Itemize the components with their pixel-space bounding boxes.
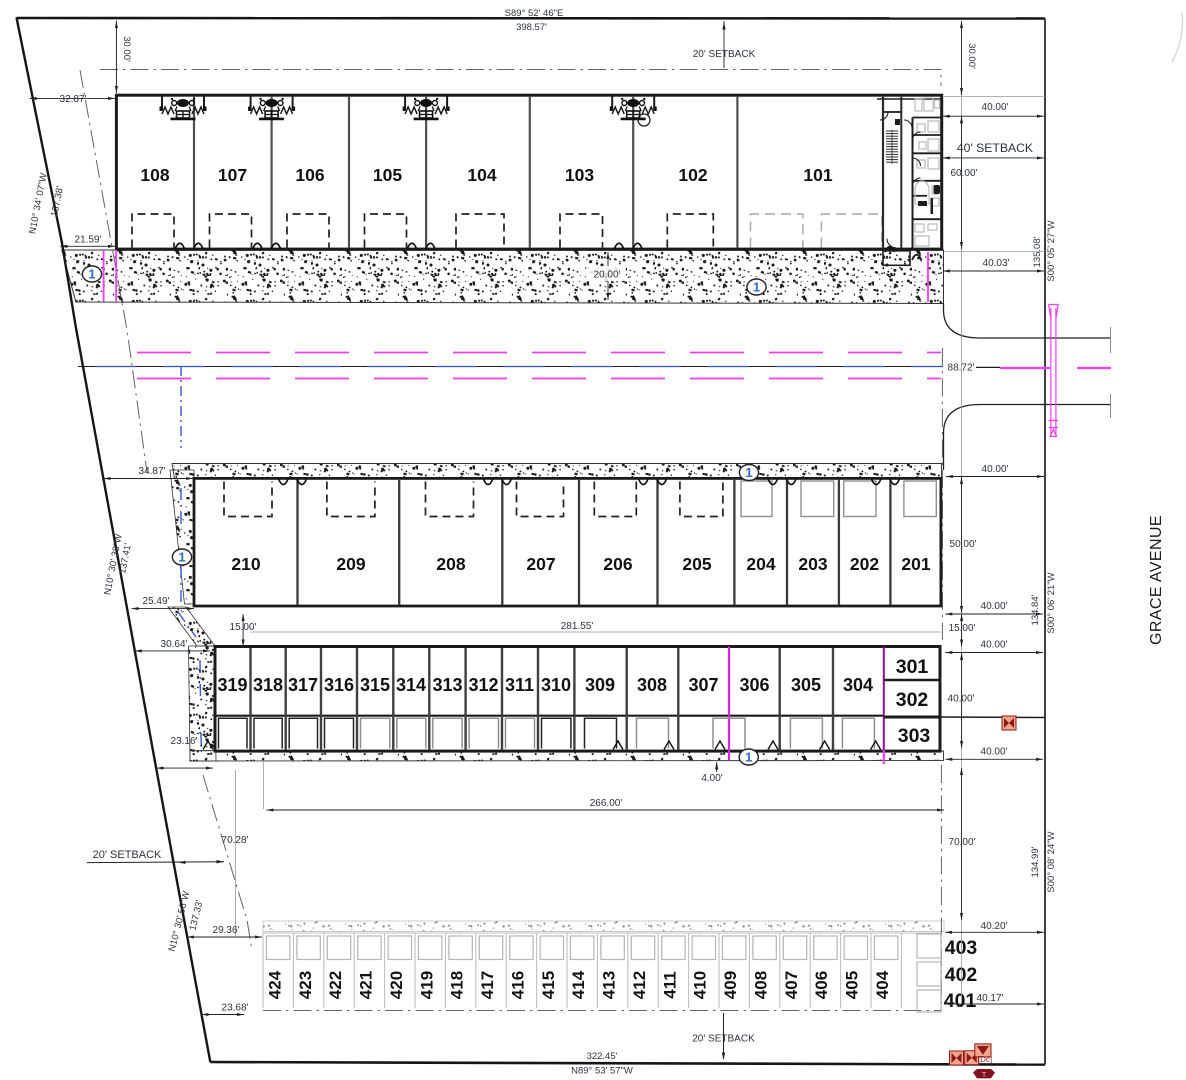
svg-text:306: 306 [739, 675, 769, 695]
svg-text:30.00': 30.00' [966, 43, 977, 69]
svg-text:414: 414 [569, 970, 588, 999]
svg-text:302: 302 [896, 689, 929, 711]
svg-text:15.00': 15.00' [949, 623, 976, 634]
svg-text:108: 108 [140, 165, 169, 185]
svg-text:421: 421 [357, 971, 376, 999]
svg-text:281.55': 281.55' [561, 621, 594, 632]
svg-text:310: 310 [541, 675, 571, 695]
svg-text:25.49': 25.49' [143, 596, 170, 607]
svg-text:105: 105 [373, 165, 402, 185]
svg-text:1: 1 [745, 465, 752, 480]
svg-text:409: 409 [721, 971, 740, 999]
svg-text:GRACE AVENUE: GRACE AVENUE [1148, 515, 1165, 645]
svg-text:60.00': 60.00' [951, 168, 978, 179]
svg-text:401: 401 [944, 990, 977, 1012]
svg-text:402: 402 [945, 964, 978, 986]
svg-text:318: 318 [253, 675, 283, 695]
svg-text:1: 1 [745, 750, 752, 765]
svg-text:106: 106 [295, 165, 324, 185]
svg-text:103: 103 [565, 165, 594, 185]
svg-text:406: 406 [812, 971, 831, 999]
svg-text:207: 207 [526, 554, 555, 574]
svg-text:20' SETBACK: 20' SETBACK [692, 1034, 755, 1045]
svg-text:88.72': 88.72' [948, 363, 975, 374]
svg-text:40.00': 40.00' [948, 694, 975, 705]
svg-text:[Dc]: [Dc] [978, 1055, 992, 1064]
svg-text:322.45': 322.45' [587, 1051, 618, 1062]
svg-text:314: 314 [396, 675, 426, 695]
svg-text:50.00': 50.00' [950, 539, 977, 550]
svg-text:206: 206 [603, 554, 632, 574]
svg-text:21.59': 21.59' [75, 235, 102, 246]
svg-text:40' SETBACK: 40' SETBACK [957, 141, 1033, 155]
svg-text:40.00': 40.00' [982, 102, 1009, 113]
svg-text:413: 413 [600, 971, 619, 999]
svg-text:410: 410 [691, 971, 710, 999]
svg-text:210: 210 [231, 554, 260, 574]
svg-text:101: 101 [803, 165, 832, 185]
svg-text:70.28': 70.28' [222, 835, 249, 846]
svg-text:1: 1 [753, 280, 760, 295]
svg-text:415: 415 [539, 971, 558, 999]
svg-text:20' SETBACK: 20' SETBACK [693, 49, 756, 60]
svg-text:305: 305 [791, 675, 821, 695]
svg-text:20.00': 20.00' [594, 270, 621, 281]
svg-text:411: 411 [660, 971, 679, 998]
svg-text:107: 107 [218, 165, 247, 185]
svg-text:40.00': 40.00' [981, 747, 1008, 758]
svg-text:208: 208 [436, 554, 465, 574]
svg-text:404: 404 [873, 970, 892, 999]
svg-text:424: 424 [265, 970, 284, 999]
svg-text:40.03': 40.03' [983, 258, 1010, 269]
svg-text:308: 308 [637, 675, 667, 695]
svg-text:40.00': 40.00' [981, 640, 1008, 651]
svg-text:32.87': 32.87' [60, 94, 87, 105]
svg-text:15.00': 15.00' [230, 622, 257, 633]
svg-text:303: 303 [898, 725, 931, 747]
svg-text:102: 102 [678, 165, 707, 185]
svg-text:S00° 05' 27"W: S00° 05' 27"W [1046, 220, 1057, 281]
svg-text:420: 420 [387, 971, 406, 999]
svg-text:S00° 08' 24"W: S00° 08' 24"W [1046, 831, 1057, 892]
svg-text:307: 307 [688, 675, 718, 695]
svg-text:315: 315 [360, 675, 390, 695]
svg-text:266.00': 266.00' [590, 798, 623, 809]
svg-text:40.20': 40.20' [981, 921, 1008, 932]
svg-text:304: 304 [843, 675, 873, 695]
svg-text:T: T [982, 1070, 987, 1079]
svg-text:301: 301 [896, 656, 929, 678]
svg-text:135.08': 135.08' [1032, 236, 1043, 267]
svg-text:316: 316 [324, 675, 354, 695]
svg-text:408: 408 [752, 971, 771, 999]
svg-text:1: 1 [178, 550, 185, 565]
svg-text:407: 407 [782, 971, 801, 999]
svg-text:23.16': 23.16' [171, 736, 198, 747]
svg-text:203: 203 [798, 554, 827, 574]
svg-text:4.00': 4.00' [701, 773, 722, 784]
svg-text:209: 209 [336, 554, 365, 574]
svg-text:416: 416 [508, 971, 527, 999]
svg-text:204: 204 [746, 554, 775, 574]
svg-text:40.00': 40.00' [982, 464, 1009, 475]
svg-text:134.84': 134.84' [1030, 594, 1041, 625]
svg-text:309: 309 [585, 675, 615, 695]
svg-text:1: 1 [88, 267, 95, 282]
svg-text:40.17': 40.17' [977, 993, 1004, 1004]
svg-text:311: 311 [505, 675, 534, 695]
svg-text:412: 412 [630, 971, 649, 999]
svg-text:34.87': 34.87' [139, 466, 166, 477]
svg-text:40.00': 40.00' [981, 601, 1008, 612]
svg-text:201: 201 [901, 554, 930, 574]
svg-text:403: 403 [945, 937, 978, 959]
svg-text:29.36': 29.36' [213, 925, 240, 936]
svg-text:405: 405 [843, 971, 862, 999]
svg-text:398.57': 398.57' [516, 22, 547, 33]
svg-text:422: 422 [326, 971, 345, 999]
svg-text:30.00': 30.00' [121, 36, 132, 62]
svg-text:S00° 06' 21"W: S00° 06' 21"W [1046, 572, 1057, 633]
svg-text:23.68': 23.68' [222, 1003, 249, 1014]
svg-text:417: 417 [478, 971, 497, 999]
svg-text:317: 317 [288, 675, 318, 695]
svg-text:202: 202 [850, 554, 879, 574]
svg-text:104: 104 [467, 165, 496, 185]
svg-text:20' SETBACK: 20' SETBACK [93, 849, 162, 861]
svg-text:418: 418 [448, 971, 467, 999]
svg-text:313: 313 [432, 675, 462, 695]
svg-text:70.00': 70.00' [949, 837, 976, 848]
svg-text:30.64': 30.64' [161, 639, 188, 650]
svg-text:S89° 52' 46"E: S89° 52' 46"E [505, 8, 564, 19]
svg-text:134.99': 134.99' [1030, 846, 1041, 877]
svg-text:423: 423 [296, 971, 315, 999]
svg-text:N89° 53' 57"W: N89° 53' 57"W [571, 1066, 633, 1077]
svg-text:319: 319 [217, 675, 247, 695]
svg-text:205: 205 [682, 554, 711, 574]
svg-text:419: 419 [417, 971, 436, 999]
svg-text:312: 312 [468, 675, 498, 695]
